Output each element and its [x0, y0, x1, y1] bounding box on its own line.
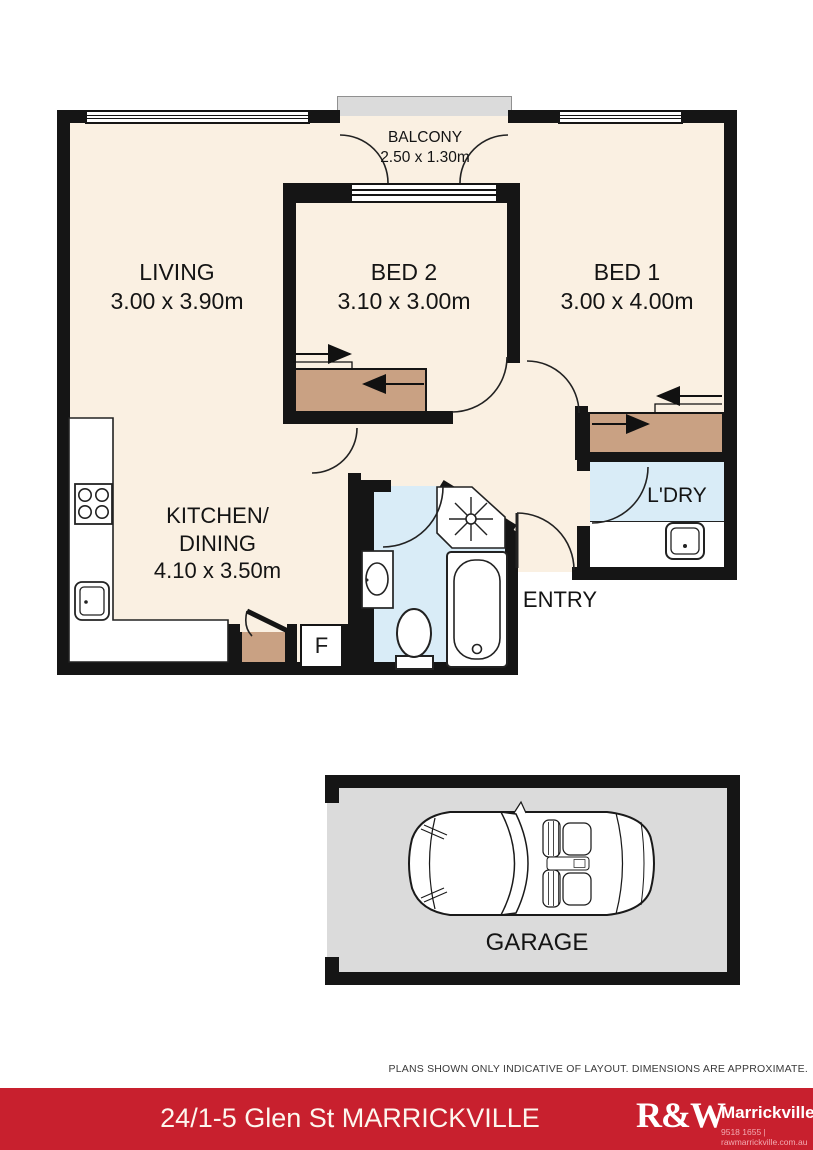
entry-name: ENTRY: [505, 586, 615, 614]
living-dims: 3.00 x 3.90m: [72, 287, 282, 316]
fridge-label: F: [315, 633, 328, 658]
bed1-dims: 3.00 x 4.00m: [528, 287, 726, 316]
garage-label: GARAGE: [437, 928, 637, 958]
wall: [228, 624, 240, 664]
kitchen-name-line1: KITCHEN/: [120, 502, 315, 530]
garage-name: GARAGE: [437, 928, 637, 958]
laundry-name: L'DRY: [622, 483, 732, 509]
wall: [575, 406, 588, 460]
agency-office-name: Marrickville: [721, 1103, 813, 1123]
wall: [57, 110, 85, 123]
bed1-label: BED 1 3.00 x 4.00m: [528, 258, 726, 316]
property-address: 24/1-5 Glen St MARRICKVILLE: [0, 1103, 700, 1134]
balcony-name: BALCONY: [340, 128, 510, 148]
kitchen-label: KITCHEN/ DINING 4.10 x 3.50m: [120, 502, 315, 585]
wall: [310, 110, 340, 123]
laundry-label: L'DRY: [622, 483, 732, 509]
wall: [727, 775, 740, 985]
living-window: [85, 110, 310, 124]
laundry-bench: [590, 521, 724, 567]
living-label: LIVING 3.00 x 3.90m: [72, 258, 282, 316]
wall: [361, 480, 374, 662]
bed2-label: BED 2 3.10 x 3.00m: [308, 258, 500, 316]
wall: [724, 110, 737, 580]
disclaimer-text: PLANS SHOWN ONLY INDICATIVE OF LAYOUT. D…: [389, 1063, 808, 1075]
bed2-name: BED 2: [308, 258, 500, 287]
fridge-space: F: [300, 624, 343, 668]
bed2-dims: 3.10 x 3.00m: [308, 287, 500, 316]
living-name: LIVING: [72, 258, 282, 287]
kitchen-pantry: [240, 632, 287, 664]
wall: [283, 183, 296, 424]
wall: [57, 110, 70, 675]
floorplan-page: F: [0, 0, 813, 1150]
wall: [343, 624, 361, 664]
wall: [325, 775, 339, 803]
balcony-dims: 2.50 x 1.30m: [340, 148, 510, 168]
wall: [572, 567, 737, 580]
wall: [325, 957, 339, 985]
wall: [325, 775, 740, 788]
wall: [325, 972, 740, 985]
bed1-window: [558, 110, 683, 124]
balcony-label: BALCONY 2.50 x 1.30m: [340, 128, 510, 167]
bed1-name: BED 1: [528, 258, 726, 287]
bed2-wardrobe: [287, 368, 427, 413]
bathroom-floor: [368, 486, 508, 665]
kitchen-name-line2: DINING: [120, 530, 315, 558]
entry-label: ENTRY: [505, 586, 615, 614]
balcony-sliding-door: [350, 183, 498, 203]
wall: [577, 453, 590, 471]
bed1-wardrobe: [588, 412, 724, 454]
wall: [283, 411, 453, 424]
wall: [583, 453, 724, 462]
wall: [577, 526, 590, 580]
wall: [508, 110, 560, 123]
agency-logo: R&W: [636, 1094, 725, 1136]
agency-contact: 9518 1655 | rawmarrickville.com.au: [721, 1127, 813, 1147]
wall: [361, 480, 391, 492]
wall: [507, 195, 520, 363]
wall: [287, 624, 297, 664]
kitchen-dims: 4.10 x 3.50m: [120, 557, 315, 585]
